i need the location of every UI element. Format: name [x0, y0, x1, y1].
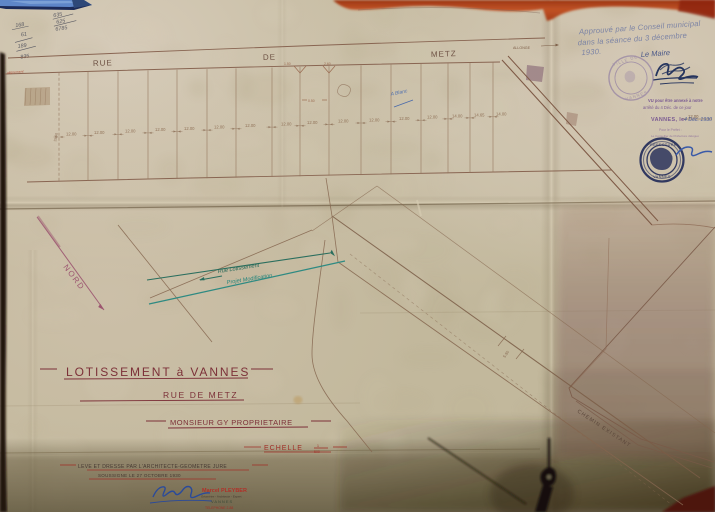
- svg-text:14.65: 14.65: [474, 112, 485, 117]
- svg-text:VANNES: VANNES: [211, 499, 233, 504]
- svg-text:TELEPHONE 2-88: TELEPHONE 2-88: [205, 506, 233, 510]
- svg-text:61: 61: [20, 32, 27, 39]
- svg-text:14.00: 14.00: [452, 113, 463, 118]
- svg-text:VU pour être annexé à notre: VU pour être annexé à notre: [648, 98, 703, 103]
- svg-text:RUE DE METZ: RUE DE METZ: [163, 390, 238, 400]
- svg-text:RUE: RUE: [93, 58, 113, 68]
- svg-text:1: 1: [317, 444, 319, 448]
- svg-text:METZ: METZ: [431, 49, 457, 59]
- svg-text:12.00: 12.00: [125, 129, 136, 134]
- svg-text:Géomètre - Architecte - Expert: Géomètre - Architecte - Expert: [201, 495, 242, 499]
- svg-text:12.00: 12.00: [94, 130, 105, 135]
- svg-text:PREFECTURE: PREFECTURE: [647, 143, 677, 147]
- svg-text:Marcel PLEYBER: Marcel PLEYBER: [202, 488, 247, 494]
- svg-text:12.00: 12.00: [66, 131, 77, 136]
- svg-text:12.00: 12.00: [307, 120, 318, 125]
- svg-text:ECHELLE: ECHELLE: [264, 445, 303, 452]
- svg-text:DE: DE: [263, 53, 276, 62]
- svg-text:12.00: 12.00: [427, 115, 438, 120]
- svg-text:LEVE ET DRESSE PAR L'ARCHITECT: LEVE ET DRESSE PAR L'ARCHITECTE-GEOMETRE…: [78, 464, 227, 470]
- svg-text:12.00: 12.00: [155, 127, 166, 132]
- svg-text:12.00: 12.00: [184, 126, 195, 131]
- svg-text:12.00: 12.00: [338, 119, 349, 124]
- svg-text:12.00: 12.00: [281, 121, 292, 126]
- svg-text:12.00: 12.00: [369, 117, 380, 122]
- svg-text:12.00: 12.00: [214, 125, 225, 130]
- svg-text:12.00: 12.00: [399, 116, 410, 121]
- svg-text:MONSIEUR GY PROPRIETAIRE: MONSIEUR GY PROPRIETAIRE: [170, 418, 293, 427]
- svg-text:2.60: 2.60: [324, 62, 331, 66]
- svg-text:arrêté du 4 Déc. de ce jour: arrêté du 4 Déc. de ce jour: [643, 105, 692, 110]
- svg-text:1930.: 1930.: [581, 47, 602, 57]
- svg-text:Pour le Préfet :: Pour le Préfet :: [659, 128, 682, 132]
- svg-text:12.00: 12.00: [245, 123, 256, 128]
- svg-text:0.50: 0.50: [308, 99, 315, 103]
- svg-text:4 Déc. 1930: 4 Déc. 1930: [684, 117, 712, 123]
- svg-text:Le Conseiller de Préfecture dé: Le Conseiller de Préfecture délégué: [651, 134, 699, 138]
- svg-text:VANNES: VANNES: [653, 175, 671, 179]
- svg-text:VANNES, le: VANNES, le: [651, 117, 685, 123]
- svg-text:14.00: 14.00: [496, 111, 507, 116]
- svg-text:LOTISSEMENT à VANNES: LOTISSEMENT à VANNES: [66, 365, 250, 379]
- svg-text:ALLONGE: ALLONGE: [513, 46, 531, 50]
- svg-text:1.50: 1.50: [284, 62, 291, 66]
- svg-text:SOUSSIGNE LE 27 OCTOBRE 1930: SOUSSIGNE LE 27 OCTOBRE 1930: [98, 473, 181, 478]
